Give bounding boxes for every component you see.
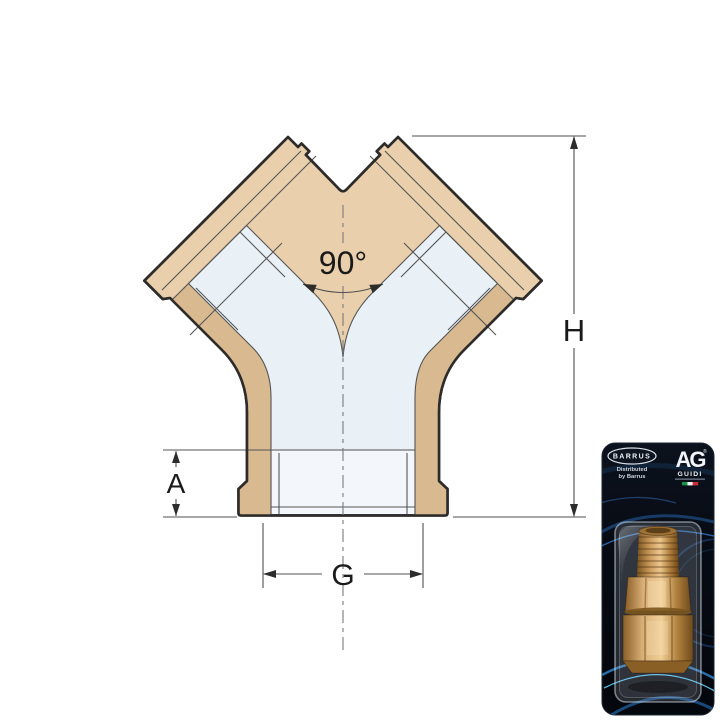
a-arrow-down [172,504,180,516]
guidi-logo-main: AG [676,447,706,472]
g-arrow-left [263,570,276,578]
guidi-logo-sub: GUIDI [678,471,703,478]
technical-drawing: 90° H A G [144,136,586,652]
h-label: H [563,313,585,348]
italy-flag-icon [682,482,698,485]
h-arrow-up [570,136,578,149]
product-packaging: BARRUS Distributed by Barrus AG ® GUIDI [592,443,720,717]
page-canvas: 90° H A G [0,0,720,720]
distributed-line1: Distributed [617,467,648,473]
brand-badge-label: BARRUS [613,454,651,461]
brand-badge: BARRUS [608,448,656,464]
guidi-logo-tagline-rule [675,479,705,480]
g-arrow-right [410,570,423,578]
guidi-logo-registered: ® [703,448,707,455]
guidi-logo: AG ® GUIDI [675,447,707,485]
g-label: G [331,559,354,592]
dimension-a: A [163,451,237,517]
distributed-line2: by Barrus [618,474,645,480]
h-arrow-down [570,504,578,517]
a-arrow-up [172,451,180,463]
a-label: A [167,468,186,499]
angle-label: 90° [319,245,367,281]
